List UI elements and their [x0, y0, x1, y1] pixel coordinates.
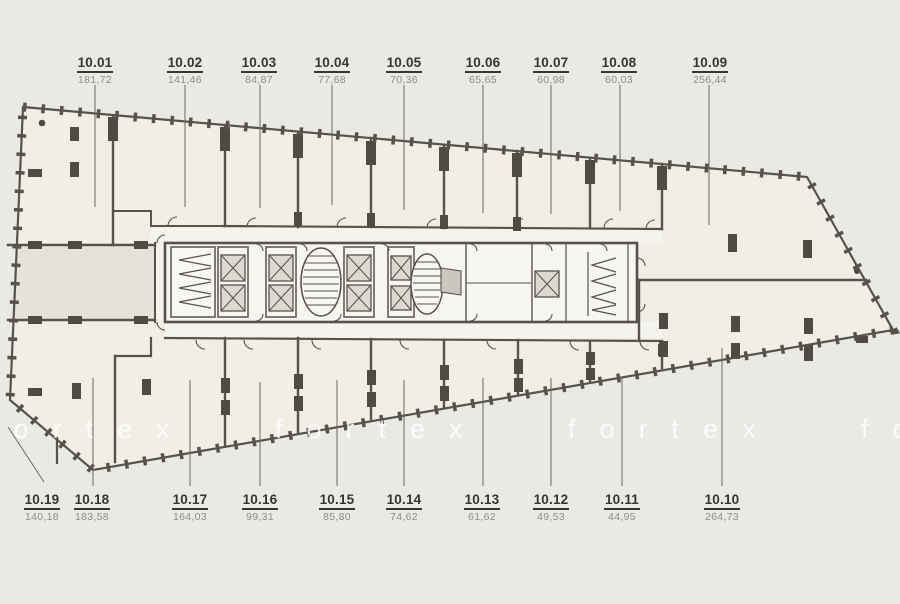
unit-number: 10.17 — [172, 493, 209, 510]
unit-number: 10.16 — [242, 493, 279, 510]
unit-region-10.14[interactable] — [371, 339, 444, 419]
core-layer — [165, 243, 637, 322]
unit-region-10.05[interactable] — [371, 138, 444, 228]
unit-region-10.12[interactable] — [518, 340, 590, 395]
unit-number: 10.10 — [704, 493, 741, 510]
unit-number: 10.03 — [241, 56, 278, 73]
unit-label-10.15[interactable]: 10.1585,80 — [313, 492, 361, 523]
unit-area: 49,53 — [527, 512, 575, 523]
unit-label-10.16[interactable]: 10.1699,31 — [236, 492, 284, 523]
unit-region-10.08[interactable] — [590, 159, 662, 228]
elevator-bank-icon — [344, 247, 374, 317]
unit-area: 61,62 — [458, 512, 506, 523]
elevator-bank-icon — [266, 247, 296, 317]
unit-number: 10.06 — [465, 56, 502, 73]
unit-area: 65,65 — [459, 75, 507, 86]
unit-number: 10.07 — [533, 56, 570, 73]
unit-label-10.19[interactable]: 10.19140,18 — [18, 492, 66, 523]
unit-label-10.11[interactable]: 10.1144,95 — [598, 492, 646, 523]
unit-area: 183,58 — [68, 512, 116, 523]
lower-corridor — [165, 322, 662, 338]
unit-area: 164,03 — [166, 512, 214, 523]
floor-plan-svg — [0, 0, 900, 604]
stair-left-icon — [171, 247, 215, 317]
oval-stair-icon — [301, 248, 341, 316]
unit-area: 85,80 — [313, 512, 361, 523]
unit-number: 10.11 — [604, 493, 640, 510]
unit-area: 256,44 — [686, 75, 734, 86]
floor-plan-canvas: fortex fortex fortex fortex 10.01181,72 … — [0, 0, 900, 604]
unit-area: 60,03 — [595, 75, 643, 86]
unit-region-10.15[interactable] — [298, 338, 371, 433]
unit-number: 10.05 — [386, 56, 423, 73]
unit-label-10.17[interactable]: 10.17164,03 — [166, 492, 214, 523]
unit-region-10.06[interactable] — [444, 146, 517, 227]
oval-stair-icon — [411, 254, 443, 314]
unit-label-10.14[interactable]: 10.1474,62 — [380, 492, 428, 523]
unit-number: 10.15 — [319, 493, 356, 510]
unit-region-10.03[interactable] — [225, 125, 298, 227]
unit-number: 10.14 — [386, 493, 423, 510]
core-shaft-block — [441, 268, 461, 295]
unit-number: 10.13 — [464, 493, 501, 510]
unit-number: 10.01 — [77, 56, 114, 73]
left-core-link — [155, 245, 165, 319]
unit-area: 264,73 — [698, 512, 746, 523]
unit-label-10.03[interactable]: 10.0384,87 — [235, 55, 283, 86]
unit-label-10.04[interactable]: 10.0477,68 — [308, 55, 356, 86]
unit-region-10.04[interactable] — [298, 133, 371, 226]
upper-corridor — [151, 228, 662, 244]
unit-label-10.13[interactable]: 10.1361,62 — [458, 492, 506, 523]
elevator-bank-icon — [388, 247, 414, 317]
unit-label-10.02[interactable]: 10.02141,46 — [161, 55, 209, 86]
unit-number: 10.02 — [167, 56, 204, 73]
unit-region-10.07[interactable] — [517, 151, 590, 228]
elevator-cab-icon — [535, 271, 559, 297]
unit-label-10.06[interactable]: 10.0665,65 — [459, 55, 507, 86]
unit-area: 84,87 — [235, 75, 283, 86]
unit-region-10.16[interactable] — [225, 338, 298, 445]
unit-number: 10.09 — [692, 56, 729, 73]
unit-label-10.10[interactable]: 10.10264,73 — [698, 492, 746, 523]
unit-area: 60,98 — [527, 75, 575, 86]
unit-label-10.09[interactable]: 10.09256,44 — [686, 55, 734, 86]
unit-area: 181,72 — [71, 75, 119, 86]
unit-region-10.02[interactable] — [113, 117, 225, 225]
unit-label-10.07[interactable]: 10.0760,98 — [527, 55, 575, 86]
unit-area: 77,68 — [308, 75, 356, 86]
unit-area: 140,18 — [18, 512, 66, 523]
unit-label-10.08[interactable]: 10.0860,03 — [595, 55, 643, 86]
unit-label-10.05[interactable]: 10.0570,36 — [380, 55, 428, 86]
unit-number: 10.04 — [314, 56, 351, 73]
unit-number: 10.12 — [533, 493, 570, 510]
unit-number: 10.08 — [601, 56, 638, 73]
unit-number: 10.18 — [74, 493, 111, 510]
unit-number: 10.19 — [24, 493, 61, 510]
unit-area: 70,36 — [380, 75, 428, 86]
unit-label-10.01[interactable]: 10.01181,72 — [71, 55, 119, 86]
unit-area: 44,95 — [598, 512, 646, 523]
unit-area: 74,62 — [380, 512, 428, 523]
unit-label-10.18[interactable]: 10.18183,58 — [68, 492, 116, 523]
unit-area: 141,46 — [161, 75, 209, 86]
unit-area: 99,31 — [236, 512, 284, 523]
unit-label-10.12[interactable]: 10.1249,53 — [527, 492, 575, 523]
elevator-bank-icon — [218, 247, 248, 317]
